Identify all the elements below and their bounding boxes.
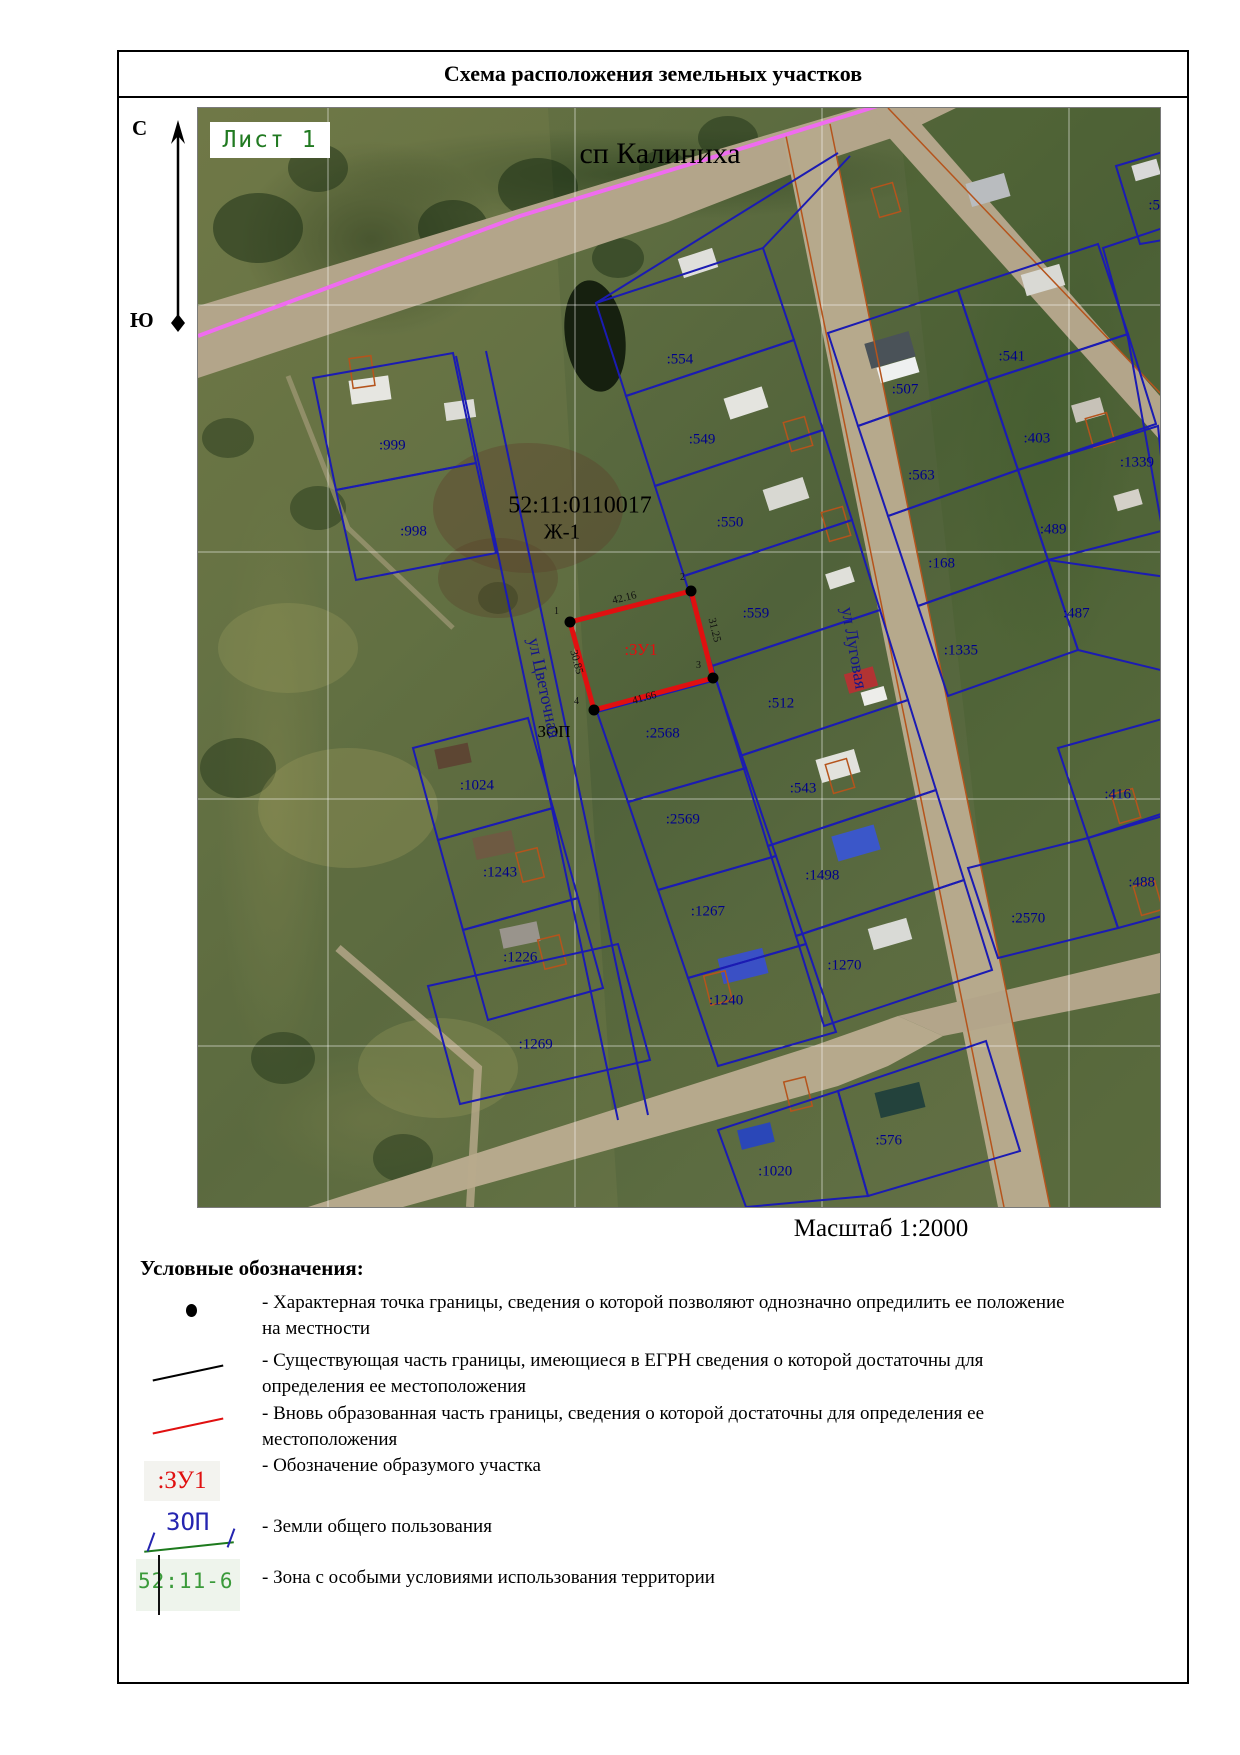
parcel-label-1243: :1243 <box>483 864 517 881</box>
corner-point-4: 4 <box>574 696 579 707</box>
parcel-label-403: :403 <box>1024 430 1051 447</box>
zone-label: Ж-1 <box>544 520 580 545</box>
parcel-label-2568: :2568 <box>646 726 680 743</box>
legend-item-text: - Зона с особыми условиями использования… <box>262 1565 1072 1591</box>
parcel-label-1020: :1020 <box>758 1163 792 1180</box>
parcel-label-559: :559 <box>743 605 770 622</box>
compass-north-label: С <box>132 116 147 141</box>
boundary-point-icon <box>186 1304 197 1317</box>
red-line-icon <box>153 1418 224 1435</box>
compass: С Ю <box>128 112 198 342</box>
page-title: Схема расположения земельных участков <box>444 61 862 87</box>
parcel-label-168: :168 <box>928 556 955 573</box>
parcel-label-541: :541 <box>999 349 1026 366</box>
parcel-label-512: :512 <box>768 695 795 712</box>
parcel-label-488: :488 <box>1128 874 1155 891</box>
sheet-badge: Лист 1 <box>210 122 330 158</box>
zu1-symbol: :ЗУ1 <box>144 1461 220 1501</box>
title-bar: Схема расположения земельных участков <box>119 52 1187 98</box>
legend-heading: Условные обозначения: <box>140 1256 364 1281</box>
parcel-label-576: :576 <box>875 1133 902 1150</box>
zop-symbol: ЗОП <box>142 1506 238 1564</box>
map-graphics <box>198 108 1160 1207</box>
parcel-label-416: :416 <box>1104 786 1131 803</box>
legend-item-text: - Обозначение образумого участка <box>262 1453 1072 1479</box>
parcel-label-1269: :1269 <box>519 1037 553 1054</box>
legend-item-text: - Существующая часть границы, имеющиеся … <box>262 1348 1072 1400</box>
parcel-label-2569: :2569 <box>666 812 700 829</box>
parcel-label-487: :487 <box>1063 605 1090 622</box>
corner-point-3: 3 <box>696 660 701 671</box>
compass-south-label: Ю <box>130 308 154 333</box>
parcel-label-1498: :1498 <box>805 868 839 885</box>
parcel-label-1267: :1267 <box>691 904 725 921</box>
parcel-label-1024: :1024 <box>460 778 494 795</box>
parcel-label-549: :549 <box>689 431 716 448</box>
settlement-label: сп Калиниха <box>579 137 740 171</box>
parcel-label-998: :998 <box>400 524 427 541</box>
cadastral-quarter-label: 52:11:0110017 <box>508 493 652 520</box>
parcel-label-5: :5 <box>1148 197 1160 214</box>
parcel-label-543: :543 <box>790 781 817 798</box>
corner-point-1: 1 <box>554 606 559 617</box>
parcel-label-489: :489 <box>1040 522 1067 539</box>
legend-item-text: - Характерная точка границы, сведения о … <box>262 1290 1072 1342</box>
new-parcel-label: :ЗУ1 <box>624 640 657 660</box>
page: { "title": "Схема расположения земельных… <box>0 0 1240 1755</box>
corner-point-2: 2 <box>680 572 685 583</box>
parcel-label-563: :563 <box>908 468 935 485</box>
zone-symbol: 52:11-6 <box>136 1559 240 1611</box>
parcel-label-1270: :1270 <box>827 958 861 975</box>
legend-item-text: - Земли общего пользования <box>262 1514 1072 1540</box>
satellite-map: Лист 1 сп Калиниха 52:11:0110017 Ж-1 ЗОП… <box>198 108 1160 1207</box>
parcel-label-2570: :2570 <box>1011 911 1045 928</box>
legend: Условные обозначения: - Характерная точк… <box>140 1256 1060 1656</box>
parcel-label-1335: :1335 <box>944 642 978 659</box>
legend-item-text: - Вновь образованная часть границы, свед… <box>262 1401 1072 1453</box>
parcel-label-507: :507 <box>892 382 919 399</box>
parcel-label-554: :554 <box>667 351 694 368</box>
parcel-label-1226: :1226 <box>503 949 537 966</box>
parcel-label-1339: :1339 <box>1120 454 1154 471</box>
parcel-label-999: :999 <box>379 438 406 455</box>
sheet-label: Лист 1 <box>222 127 317 153</box>
scale-label: Масштаб 1:2000 <box>700 1215 1062 1243</box>
parcel-label-1240: :1240 <box>709 993 743 1010</box>
black-line-icon <box>153 1365 224 1382</box>
parcel-label-550: :550 <box>717 515 744 532</box>
